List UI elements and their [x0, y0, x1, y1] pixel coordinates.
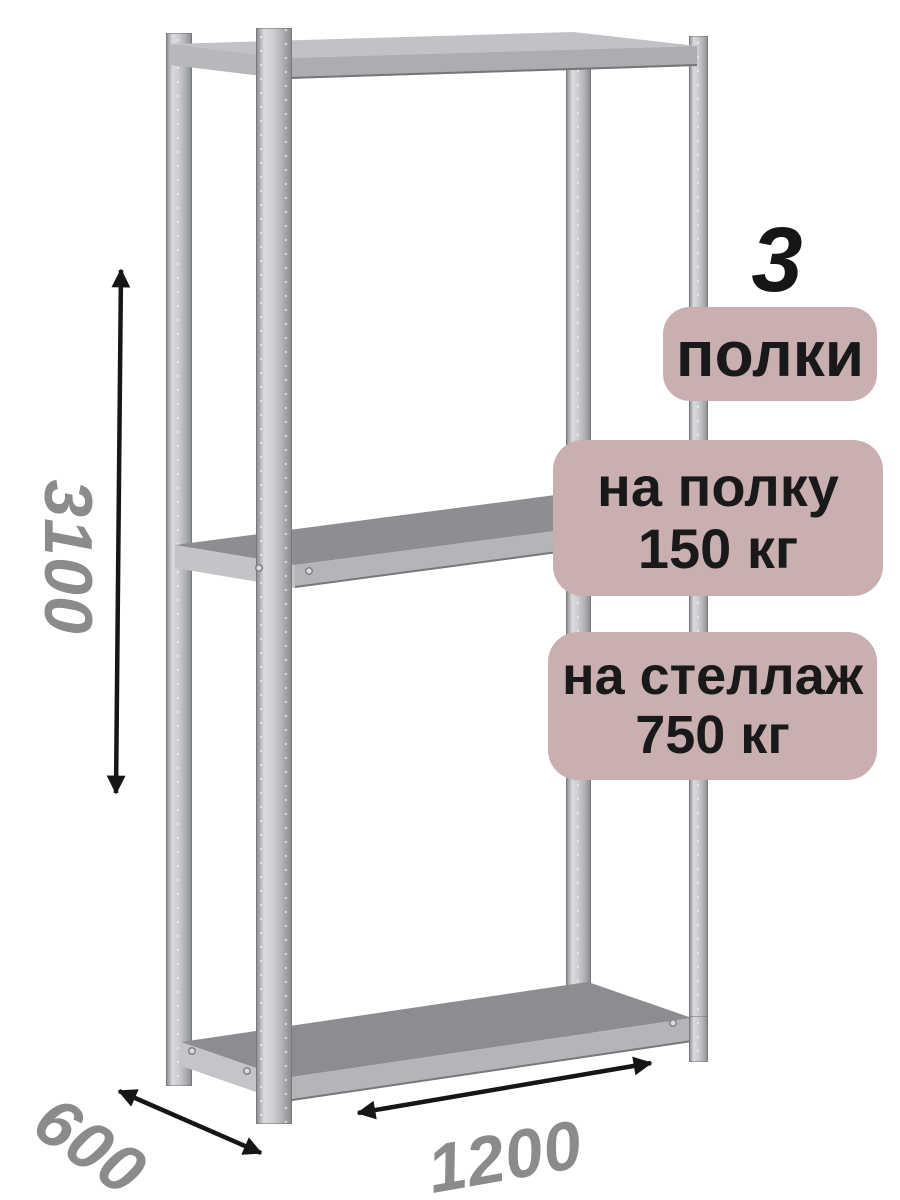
dimension-arrows [0, 0, 900, 1200]
rack-post-back-left [166, 33, 192, 1086]
per-rack-capacity-badge: на стеллаж 750 кг [548, 632, 877, 780]
per-shelf-capacity-badge: на полку 150 кг [553, 440, 883, 596]
bottom-shelf-front-edge [0, 0, 900, 1200]
rack-post-front-left [256, 28, 292, 1124]
middle-shelf-surface [0, 0, 900, 1200]
height-dimension-label: 3100 [29, 479, 107, 634]
screw [188, 1047, 196, 1055]
per-shelf-capacity-text: на полку [597, 456, 839, 518]
per-rack-capacity-value: 750 кг [635, 706, 790, 765]
width-dimension-label: 1200 [422, 1105, 588, 1200]
bottom-shelf-side-edge [0, 0, 900, 1200]
per-shelf-capacity-value: 150 кг [638, 518, 798, 580]
screw [243, 1067, 251, 1075]
height-dimension-arrow [116, 270, 121, 793]
width-dimension-arrow [358, 1063, 651, 1113]
shelf-count-number: 3 [742, 214, 812, 306]
screw [669, 1019, 677, 1027]
screw [255, 564, 263, 572]
middle-shelf-side-edge [0, 0, 900, 1200]
top-shelf-edge-line [0, 0, 900, 1200]
rack-post-front-right-foot [689, 1016, 708, 1062]
depth-dimension-label: 600 [20, 1081, 160, 1200]
per-rack-capacity-text: на стеллаж [562, 647, 863, 706]
top-shelf-front-edge [0, 0, 900, 1200]
bottom-shelf-edge-line [0, 0, 900, 1200]
shelf-count-badge-label: полки [676, 319, 864, 389]
shelf-count-badge: полки [663, 307, 877, 401]
product-figure: 3100 600 1200 3 полки на полку 150 кг на… [0, 0, 900, 1200]
middle-shelf-front-edge [0, 0, 900, 1200]
bottom-shelf-surface [0, 0, 900, 1200]
top-shelf-surface [0, 0, 900, 1200]
screw [305, 567, 313, 575]
middle-shelf-edge-line [0, 0, 900, 1200]
top-shelf-side-edge [0, 0, 900, 1200]
